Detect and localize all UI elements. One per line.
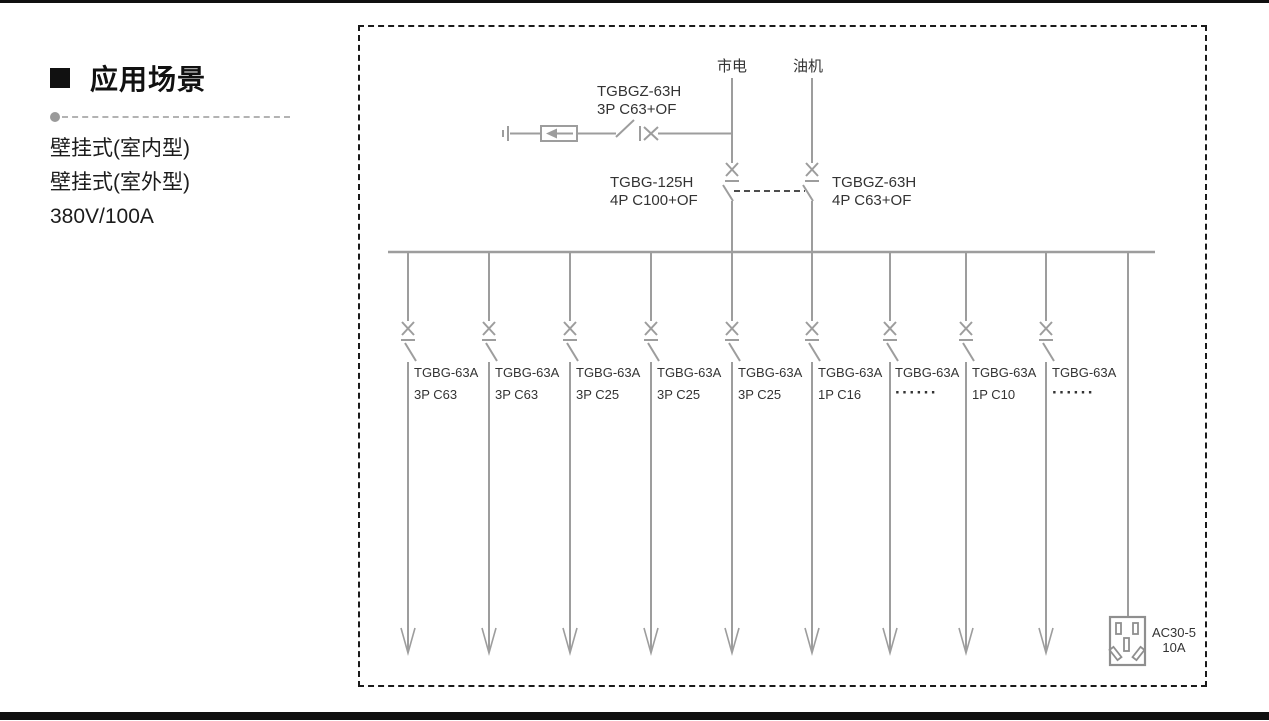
socket-label: AC30-5 10A: [1147, 625, 1201, 655]
socket-rating: 10A: [1147, 640, 1201, 655]
branch-spec: ······: [1052, 387, 1116, 398]
branch-label: TGBG-63A 3P C25: [576, 366, 640, 401]
transfer-left-spec: 4P C100+OF: [610, 192, 698, 210]
page: 应用场景 壁挂式(室内型) 壁挂式(室外型) 380V/100A: [0, 0, 1269, 721]
spd-breaker-model: TGBGZ-63H: [597, 83, 681, 101]
branch-spec: 1P C10: [972, 388, 1036, 401]
transfer-right-model: TGBGZ-63H: [832, 174, 916, 192]
branch-spec: 3P C25: [657, 388, 721, 401]
branch-label: TGBG-63A ······: [1052, 366, 1116, 398]
branch-spec: 3P C63: [414, 388, 478, 401]
diagram-border: [358, 25, 1207, 687]
branch-spec: 3P C63: [495, 388, 559, 401]
branch-model: TGBG-63A: [818, 366, 882, 379]
transfer-right-label: TGBGZ-63H 4P C63+OF: [832, 174, 916, 210]
branch-label: TGBG-63A 3P C63: [414, 366, 478, 401]
transfer-left-model: TGBG-125H: [610, 174, 698, 192]
branch-spec: 3P C25: [576, 388, 640, 401]
branch-spec: 1P C16: [818, 388, 882, 401]
branch-label: TGBG-63A 1P C16: [818, 366, 882, 401]
transfer-left-label: TGBG-125H 4P C100+OF: [610, 174, 698, 210]
single-line-diagram: 市电 油机 TGBGZ-63H 3P C63+OF TGBG-125H 4P C…: [0, 0, 1269, 721]
spd-breaker-label: TGBGZ-63H 3P C63+OF: [597, 83, 681, 119]
branch-model: TGBG-63A: [738, 366, 802, 379]
source-label-generator: 油机: [778, 55, 838, 76]
branch-model: TGBG-63A: [1052, 366, 1116, 379]
branch-spec: 3P C25: [738, 388, 802, 401]
branch-model: TGBG-63A: [895, 366, 959, 379]
branch-label: TGBG-63A 3P C63: [495, 366, 559, 401]
spd-breaker-spec: 3P C63+OF: [597, 101, 681, 119]
branch-spec: ······: [895, 387, 959, 398]
branch-label: TGBG-63A ······: [895, 366, 959, 398]
branch-label: TGBG-63A 3P C25: [738, 366, 802, 401]
branch-label: TGBG-63A 1P C10: [972, 366, 1036, 401]
branch-model: TGBG-63A: [972, 366, 1036, 379]
transfer-right-spec: 4P C63+OF: [832, 192, 916, 210]
branch-model: TGBG-63A: [414, 366, 478, 379]
socket-model: AC30-5: [1147, 625, 1201, 640]
source-label-mains: 市电: [702, 55, 762, 76]
branch-model: TGBG-63A: [576, 366, 640, 379]
branch-label: TGBG-63A 3P C25: [657, 366, 721, 401]
branch-model: TGBG-63A: [495, 366, 559, 379]
branch-model: TGBG-63A: [657, 366, 721, 379]
